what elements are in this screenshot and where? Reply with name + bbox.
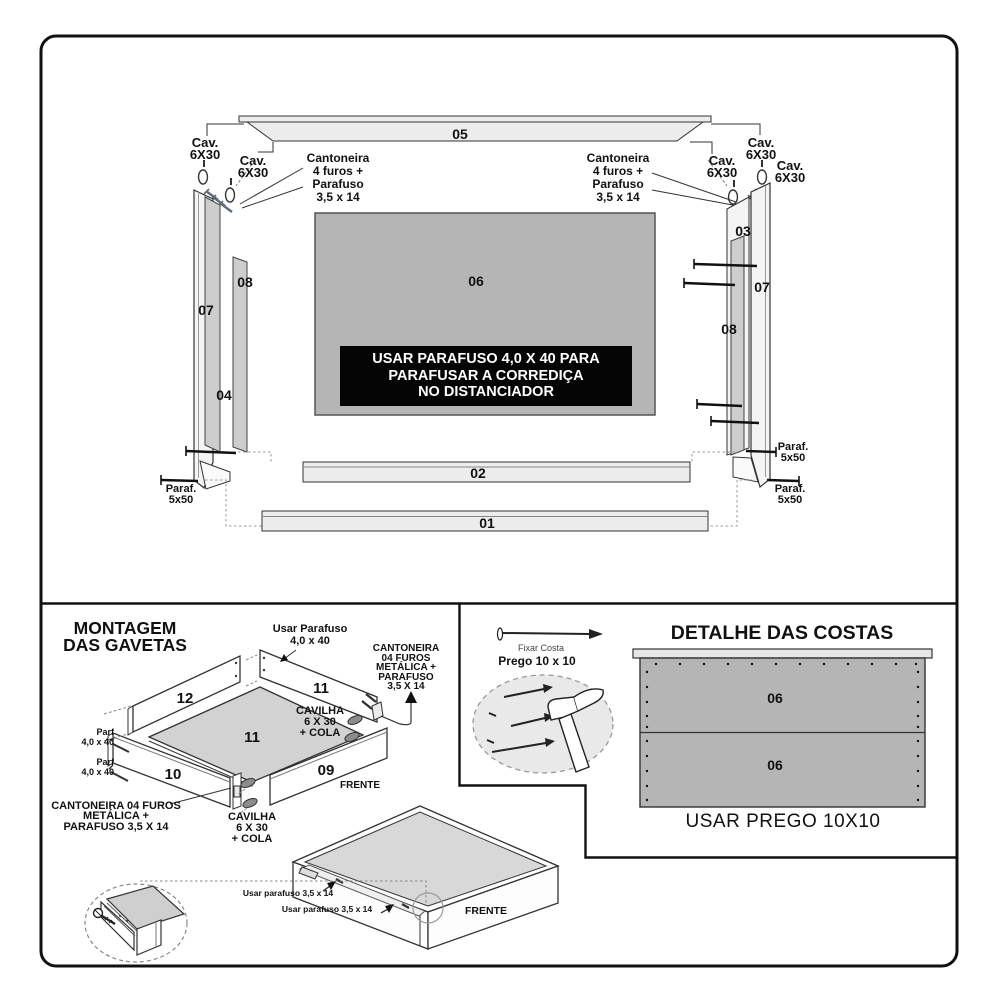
panel-label-11-back: 11 — [313, 680, 329, 697]
cav-label-left-2: Cav. 6X30 — [238, 155, 268, 179]
panel-label-04: 04 — [216, 387, 232, 403]
nail-icon — [498, 628, 604, 640]
left-side-panel-group — [194, 190, 247, 489]
dowel-icons — [199, 160, 767, 204]
assembled-drawer — [293, 806, 558, 949]
note-line: Parf — [70, 727, 114, 737]
corner-inset — [85, 884, 187, 962]
costas-panel-label-bottom: 06 — [767, 757, 783, 773]
panel-label-05: 05 — [452, 126, 468, 142]
panel-label-07-left: 07 — [198, 302, 214, 318]
note-line: Parf — [70, 757, 114, 767]
cav-label-right-1: Cav. 6X30 — [746, 137, 776, 161]
cav-line2: 6X30 — [775, 172, 805, 184]
note-line: 3,5 x 14 — [587, 191, 650, 204]
screw-note-2: Usar parafuso 3,5 x 14 — [282, 904, 372, 914]
note-line3: NO DISTANCIADOR — [340, 384, 632, 401]
title-line2: DAS GAVETAS — [63, 637, 187, 654]
cavilha-note-bottom: CAVILHA 6 X 30 + COLA — [228, 812, 276, 845]
note-line: 4,0 x 40 — [70, 737, 114, 747]
paraf-label-left: Paraf. 5x50 — [166, 484, 197, 506]
rail-panel-02 — [303, 462, 690, 482]
cantoneira-note-left: Cantoneira 4 furos + Parafuso 3,5 x 14 — [307, 152, 370, 204]
back-detail-panel — [633, 649, 932, 807]
note-line: PARAFUSO 3,5 X 14 — [51, 822, 181, 832]
panel-label-08-right: 08 — [721, 321, 737, 337]
paraf-label-right-1: Paraf. 5x50 — [778, 442, 809, 464]
frente-label-exploded: FRENTE — [340, 780, 380, 791]
note-line: + COLA — [296, 728, 344, 739]
fixar-costa-caption: Fixar Costa — [518, 643, 564, 653]
paraf-line2: 5x50 — [166, 495, 197, 506]
panel-label-03: 03 — [735, 223, 751, 239]
panel-label-02: 02 — [470, 465, 486, 481]
cav-line2: 6X30 — [707, 167, 737, 179]
note-line: Usar Parafuso — [273, 624, 348, 636]
cav-label-left-1: Cav. 6X30 — [190, 137, 220, 161]
slide-screw-note: USAR PARAFUSO 4,0 X 40 PARA PARAFUSAR A … — [340, 346, 632, 406]
note-line: 4,0 x 40 — [273, 636, 348, 648]
cantoneira-note-right: Cantoneira 4 furos + Parafuso 3,5 x 14 — [587, 152, 650, 204]
screw-note-1: Usar parafuso 3,5 x 14 — [243, 888, 333, 898]
usar-prego-note: USAR PREGO 10X10 — [686, 811, 881, 833]
cav-line2: 6X30 — [746, 149, 776, 161]
diagram-line-art — [0, 0, 1000, 1000]
costas-panel-label-top: 06 — [767, 690, 783, 706]
note-line: 3,5 X 14 — [373, 682, 439, 692]
panel-label-07-right: 07 — [754, 279, 770, 295]
montagem-title: MONTAGEM DAS GAVETAS — [63, 620, 187, 654]
note-line: + COLA — [228, 834, 276, 845]
assembly-instruction-sheet: Cav. 6X30 Cav. 6X30 Cav. 6X30 Cav. 6X30 … — [0, 0, 1000, 1000]
note-line1: USAR PARAFUSO 4,0 X 40 PARA — [340, 351, 632, 368]
cav-line2: 6X30 — [238, 167, 268, 179]
paraf-line2: 5x50 — [778, 453, 809, 464]
cantoneira-note-drawer-bottom: CANTONEIRA 04 FUROS METÁLICA + PARAFUSO … — [51, 801, 181, 832]
detalhe-title: DETALHE DAS COSTAS — [671, 622, 893, 645]
panel-label-09: 09 — [318, 762, 335, 779]
usar-parafuso-note: Usar Parafuso 4,0 x 40 — [273, 624, 348, 647]
paraf-line2: 5x50 — [775, 495, 806, 506]
parf-label-2: Parf 4,0 x 40 — [70, 757, 114, 777]
panel-label-10: 10 — [165, 766, 182, 783]
panel-label-12: 12 — [177, 690, 194, 707]
parf-label-1: Parf 4,0 x 40 — [70, 727, 114, 747]
cav-line2: 6X30 — [190, 149, 220, 161]
panel-label-08-left: 08 — [237, 274, 253, 290]
cav-label-right-3: Cav. 6X30 — [775, 160, 805, 184]
cavilha-note-top: CAVILHA 6 X 30 + COLA — [296, 706, 344, 739]
cav-label-right-2: Cav. 6X30 — [707, 155, 737, 179]
note-line2: PARAFUSAR A CORREDIÇA — [340, 368, 632, 385]
panel-label-11-bottom: 11 — [244, 729, 260, 746]
cantoneira-note-drawer-right: CANTONEIRA 04 FUROS METÁLICA + PARAFUSO … — [373, 644, 439, 692]
frente-label-assembled: FRENTE — [465, 905, 507, 917]
panel-label-01: 01 — [479, 515, 495, 531]
top-shelf-panel-05 — [239, 116, 711, 141]
note-line: 4,0 x 40 — [70, 767, 114, 777]
paraf-label-right-2: Paraf. 5x50 — [775, 484, 806, 506]
panel-label-06: 06 — [468, 273, 484, 289]
note-line: 3,5 x 14 — [307, 191, 370, 204]
prego-caption: Prego 10 x 10 — [498, 654, 575, 668]
